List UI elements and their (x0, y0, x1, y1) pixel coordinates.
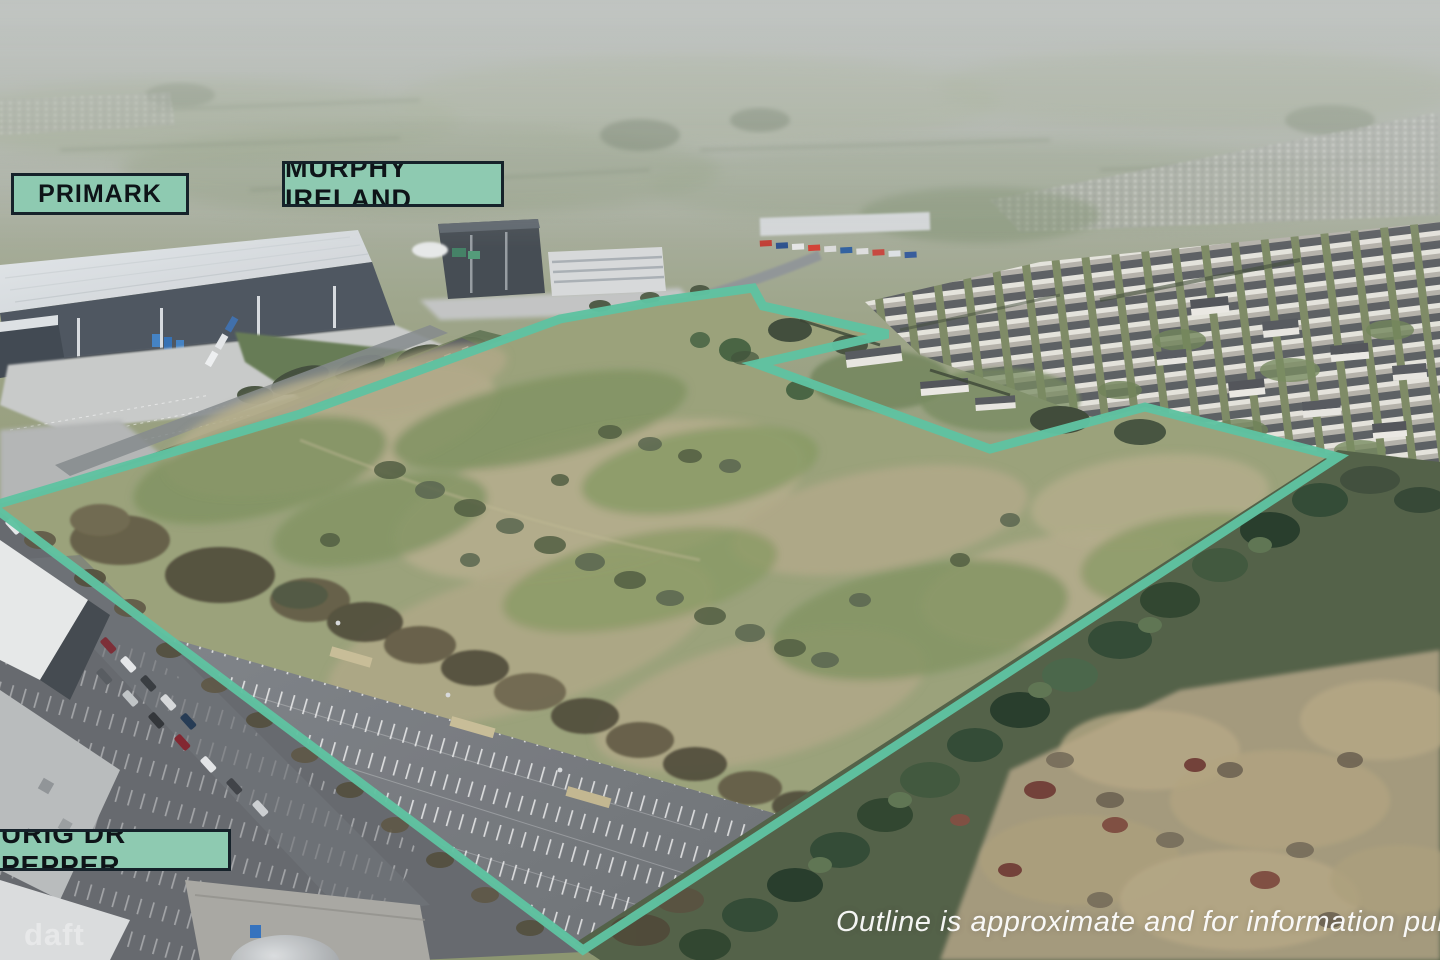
site-boundary-polygon (0, 288, 1338, 950)
aerial-photo-listing: PRIMARK MURPHY IRELAND URIG DR PEPPER Ou… (0, 0, 1440, 960)
site-outline (0, 0, 1440, 960)
